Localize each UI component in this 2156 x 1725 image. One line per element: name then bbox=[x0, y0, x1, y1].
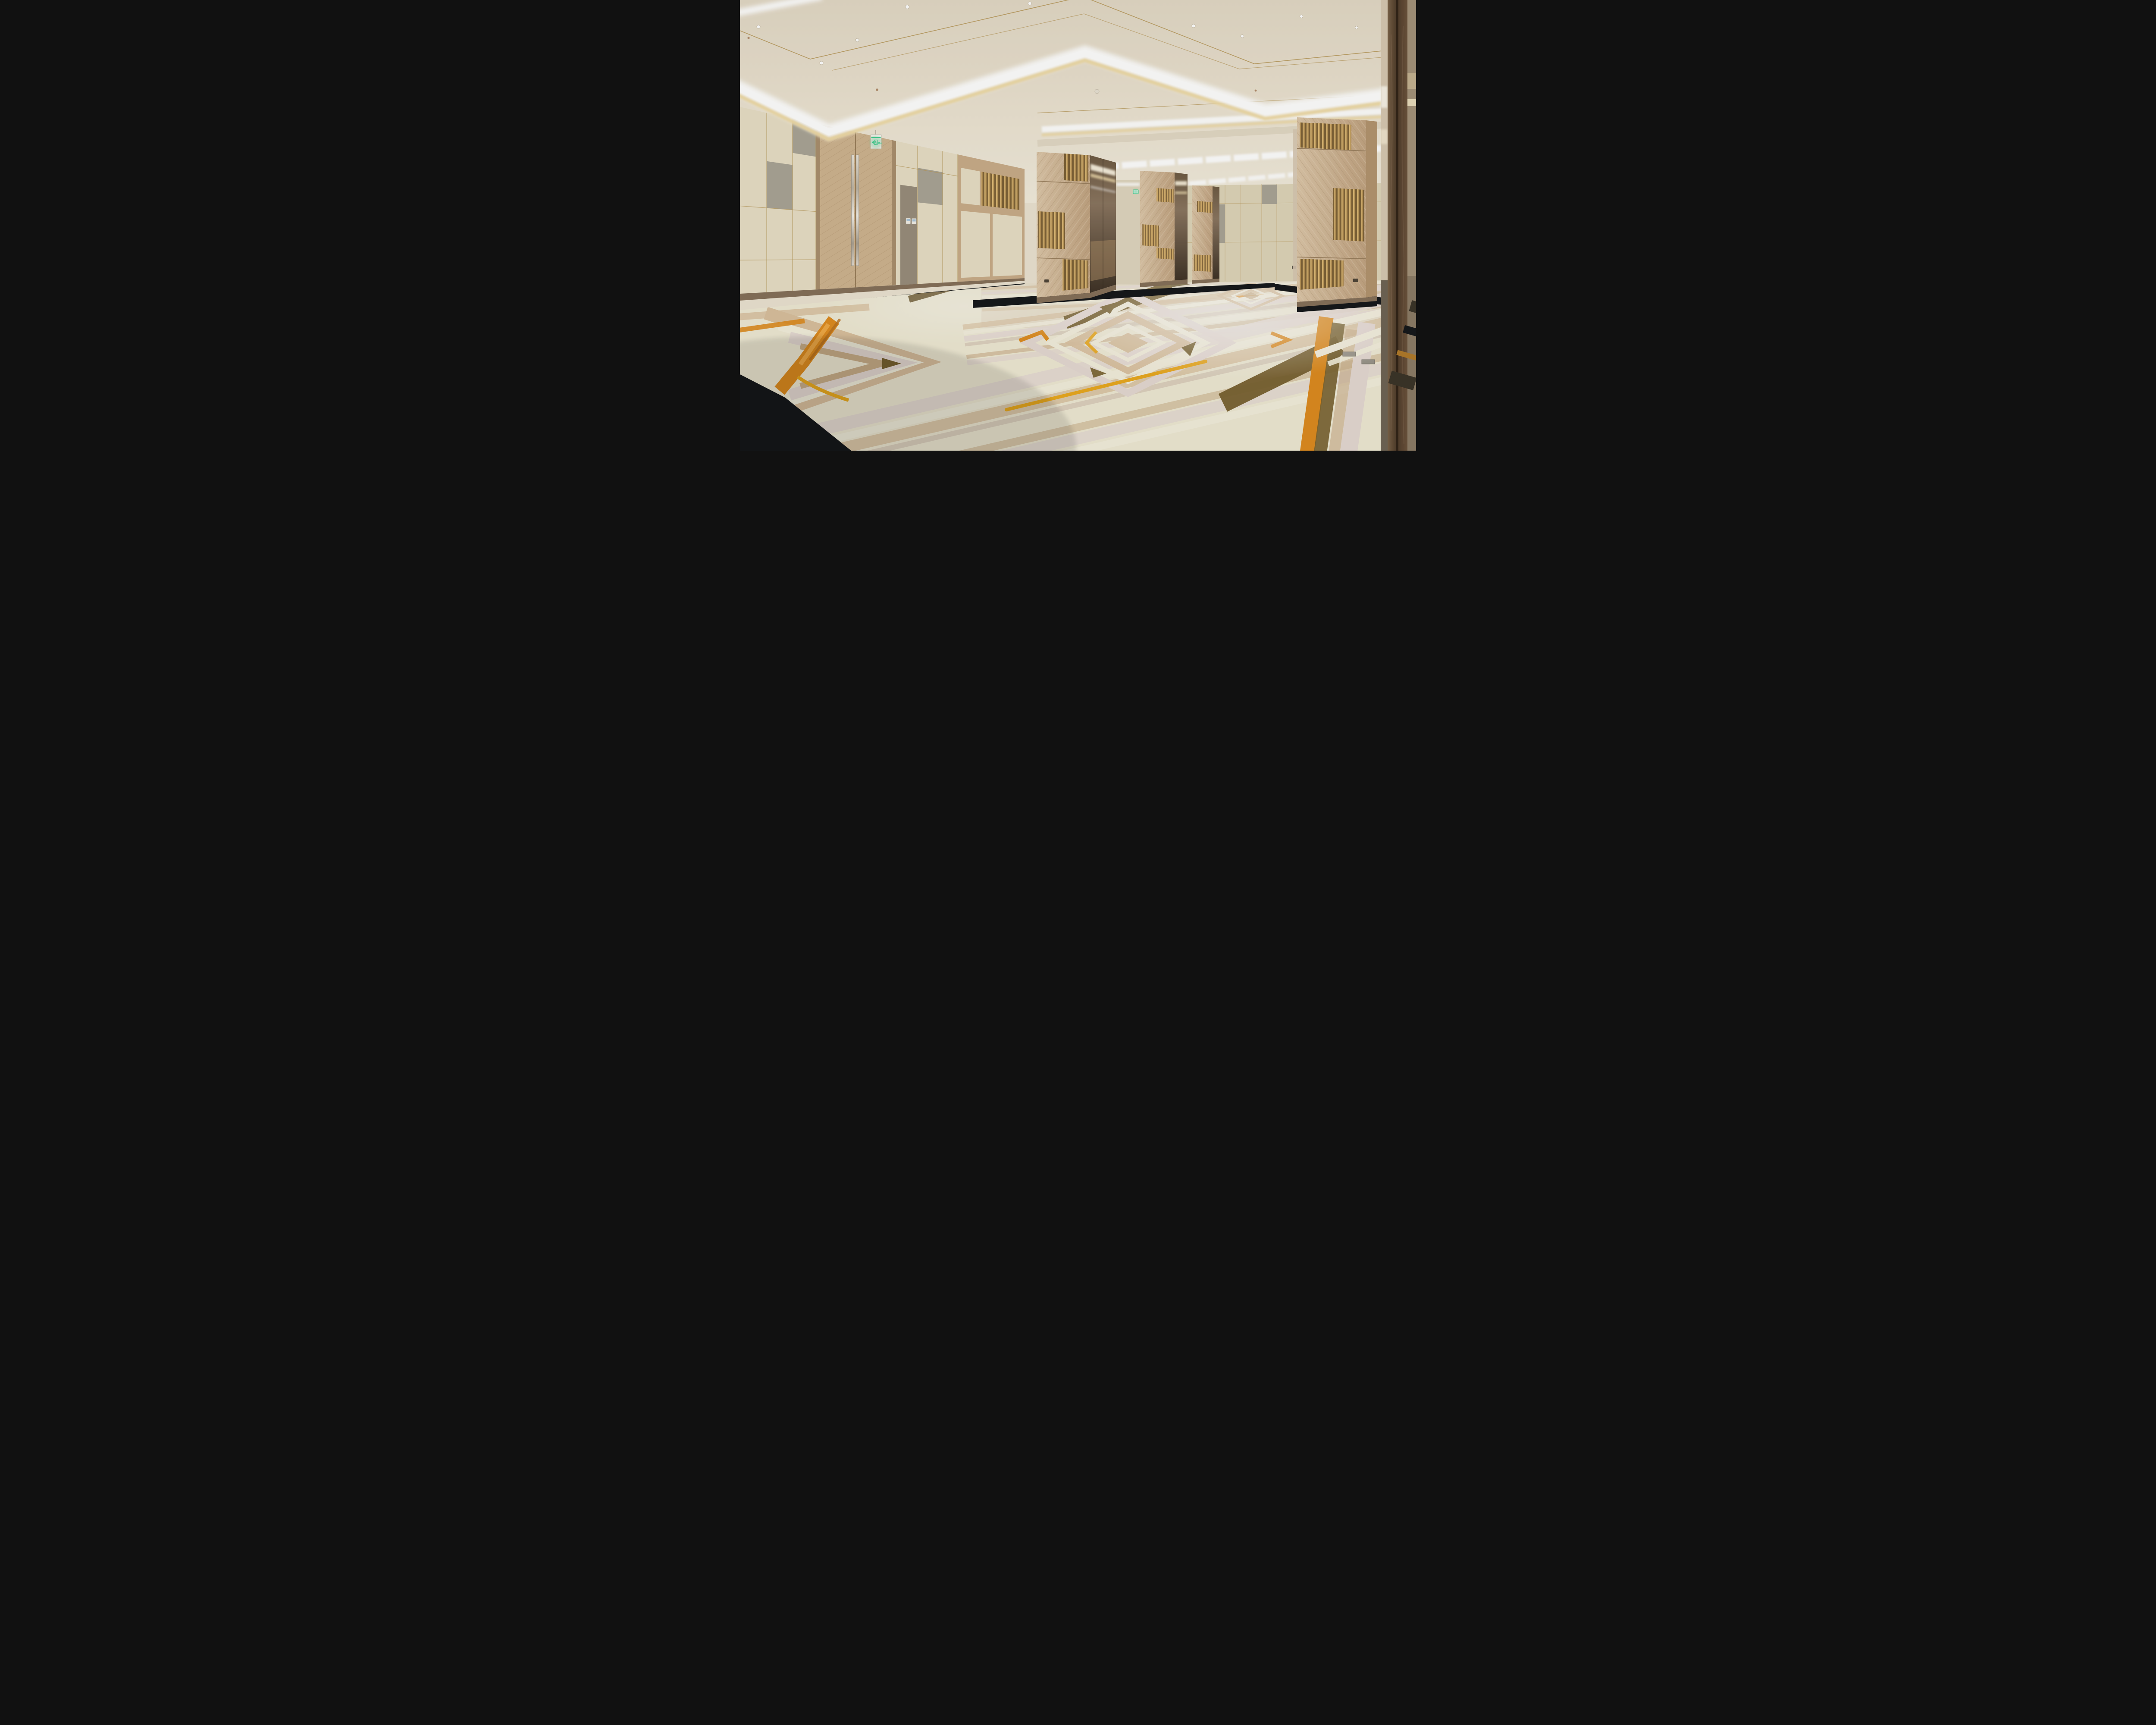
ballroom-photo: EXIT bbox=[740, 0, 1416, 451]
scene: EXIT bbox=[740, 0, 1416, 451]
photo-vignette bbox=[740, 0, 1416, 451]
